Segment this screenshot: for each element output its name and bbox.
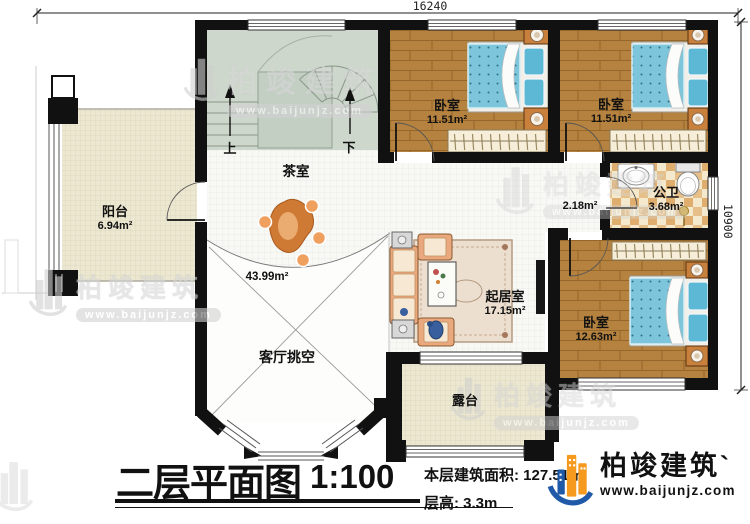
room-area-tea-room: 43.99m² bbox=[246, 271, 289, 284]
sink bbox=[618, 164, 654, 188]
floor-plan-drawing bbox=[0, 0, 750, 524]
window bbox=[598, 20, 686, 30]
window bbox=[578, 378, 685, 390]
floor-plan-canvas: 柏竣建筑 www.baijunjz.com 柏竣建筑 www.baijunjz.… bbox=[0, 0, 750, 524]
tv bbox=[536, 260, 545, 314]
pillar-outline bbox=[52, 76, 74, 98]
window bbox=[420, 352, 522, 364]
room-label-tea-room: 茶室 bbox=[283, 164, 310, 179]
brand-logo-icon bbox=[546, 452, 594, 512]
construction-lines bbox=[2, 66, 50, 300]
window bbox=[248, 20, 345, 30]
brand-logo: 柏竣建筑` www.baijunjz.com bbox=[546, 452, 736, 512]
plan-scale: 1:100 bbox=[310, 458, 394, 496]
window bbox=[428, 20, 516, 30]
wardrobe bbox=[610, 130, 706, 152]
stairs-down-label: 下 bbox=[342, 141, 355, 156]
room-label-bedroom-top-mid: 卧室 11.51m² bbox=[427, 99, 467, 126]
wardrobe bbox=[448, 130, 546, 152]
floor-height-text: 层高: 3.3m bbox=[424, 492, 497, 513]
stairs-up-label: 上 bbox=[223, 142, 236, 157]
railing bbox=[49, 124, 59, 270]
dimension-top: 16240 bbox=[413, 0, 448, 13]
brand-url: www.baijunjz.com bbox=[600, 483, 736, 498]
room-label-bedroom-top-right: 卧室 11.51m² bbox=[591, 98, 631, 125]
room-area-corridor: 2.18m² bbox=[563, 200, 598, 212]
title-underline-thick bbox=[115, 499, 420, 503]
brand-tick: ` bbox=[720, 451, 732, 481]
room-label-void: 客厅挑空 bbox=[259, 350, 315, 366]
room-label-living: 起居室 17.15m² bbox=[485, 290, 526, 317]
coffee-table bbox=[428, 262, 456, 306]
room-label-terrace: 露台 bbox=[452, 394, 478, 409]
room-label-balcony: 阳台 6.94m² bbox=[98, 205, 133, 232]
brand-name: 柏竣建筑` bbox=[600, 452, 736, 482]
pillar bbox=[48, 270, 78, 296]
room-label-bedroom-right: 卧室 12.63m² bbox=[576, 316, 617, 343]
dimension-right: 10900 bbox=[721, 204, 734, 239]
pillar bbox=[48, 98, 78, 124]
window bbox=[708, 177, 718, 210]
room-label-bathroom: 公卫 3.68m² bbox=[649, 186, 684, 213]
wardrobe bbox=[612, 242, 706, 260]
window bbox=[406, 446, 524, 457]
